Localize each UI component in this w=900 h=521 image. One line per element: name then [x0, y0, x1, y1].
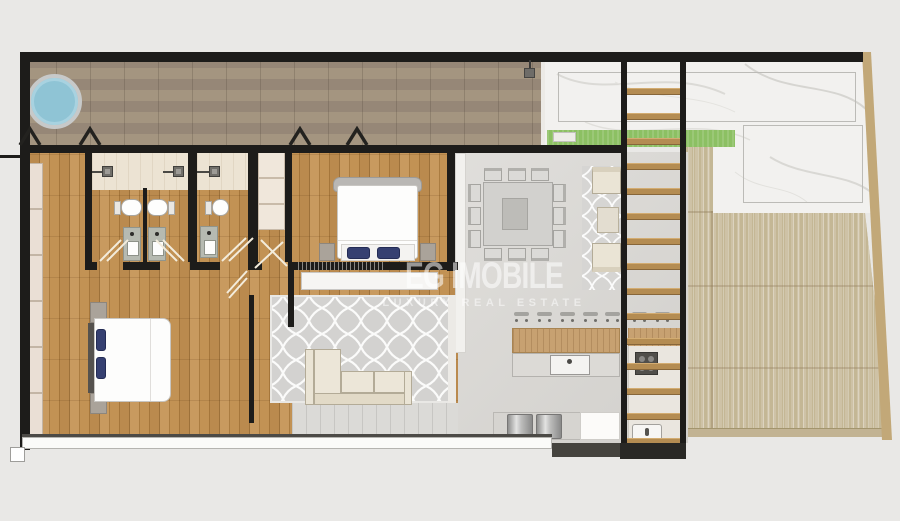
window-band [22, 437, 552, 449]
sofa-armrest [404, 371, 412, 405]
faucet-icon [645, 428, 649, 436]
island-sink [550, 355, 590, 375]
stair-rail [680, 52, 686, 451]
terrace-tile-outline-2 [743, 125, 863, 203]
dining-chair [553, 207, 566, 225]
bar-stool-icon [514, 312, 529, 322]
shower-head-icon [173, 166, 184, 177]
dining-chair [553, 230, 566, 248]
sofa-armrest [305, 349, 314, 405]
dining-chair [508, 248, 526, 261]
dining-chair [531, 168, 549, 181]
stair-tread [627, 338, 680, 345]
dining-chair [531, 248, 549, 261]
tv-console [301, 272, 438, 290]
kitchen-island-bar [512, 328, 620, 353]
bar-stool-icon [583, 312, 598, 322]
toilet [147, 199, 168, 216]
toilet-tank [114, 201, 121, 215]
stair-rail [621, 52, 627, 451]
wall [188, 153, 197, 262]
wall [447, 153, 455, 271]
stair-tread [627, 213, 680, 220]
exterior-wall-top [20, 52, 863, 62]
shower-head-icon [209, 166, 220, 177]
lounge-chair [592, 243, 621, 272]
interior-wall-top [20, 145, 623, 153]
door-marker-icon [16, 126, 44, 146]
stair-tread [627, 388, 680, 395]
dining-chair [468, 184, 481, 202]
patio-strip [292, 403, 458, 436]
door-marker-icon [76, 126, 104, 146]
dining-chair [484, 168, 502, 181]
bed-pillow [96, 357, 106, 379]
wall [85, 262, 97, 270]
toilet-tank [205, 201, 212, 215]
dining-chair [468, 207, 481, 225]
stair-tread [627, 113, 680, 120]
nightstand [319, 243, 335, 261]
wall [248, 153, 258, 262]
stair-tread [627, 413, 680, 420]
sofa-cushion [374, 371, 407, 393]
vanity-sink [148, 227, 166, 261]
wall-cabinet [455, 153, 466, 353]
stair-tread [627, 138, 680, 145]
bed-fold-line [338, 240, 417, 241]
wall [190, 262, 220, 270]
faucet-icon [567, 359, 572, 364]
bed-pillow [347, 247, 370, 259]
dining-chair [468, 230, 481, 248]
vanity-sink [200, 226, 218, 258]
deck-seam [683, 367, 895, 369]
stair-base [620, 443, 686, 459]
dining-chair [508, 168, 526, 181]
planter [553, 132, 576, 142]
side-table [597, 207, 619, 233]
floor-plan: EG IMOBILE LUXURY REAL ESTATE [0, 0, 900, 521]
outdoor-shower-icon [524, 68, 535, 78]
wall-corner-post [10, 447, 25, 462]
toilet [121, 199, 142, 216]
sofa-back [314, 393, 407, 405]
tv-slat-wall [298, 262, 384, 270]
bar-stool-icon [605, 312, 620, 322]
shower-arm [92, 171, 102, 173]
toilet-tank [168, 201, 175, 215]
stair-tread [627, 263, 680, 270]
stair-tread [627, 163, 680, 170]
wall [249, 295, 254, 423]
closet-shelf [258, 204, 285, 230]
sofa-chaise [314, 349, 341, 394]
deck-seam [683, 285, 895, 287]
lounge-chair [592, 167, 621, 194]
kitchen-cabinet [580, 412, 620, 440]
stair-tread [627, 238, 680, 245]
door-marker-icon [343, 126, 371, 146]
wall [285, 153, 292, 262]
shower-arm [197, 171, 209, 173]
door-marker-icon [286, 126, 314, 146]
table-centerpiece [502, 198, 528, 230]
toilet [212, 199, 229, 216]
wall-divider [143, 188, 147, 262]
bar-stool-icon [537, 312, 552, 322]
shower-head-icon [102, 166, 113, 177]
dining-chair [484, 248, 502, 261]
stair-tread [627, 363, 680, 370]
bed-pillow [96, 329, 106, 351]
stair-tread [627, 313, 680, 320]
stair-tread [627, 88, 680, 95]
deck-seam [711, 211, 713, 437]
shower-arm [163, 171, 173, 173]
wall [288, 262, 294, 327]
site-line [0, 155, 20, 158]
stair-base [552, 443, 624, 457]
rug-runner-edge [448, 295, 456, 403]
sofa-cushion [341, 371, 374, 393]
closet-shelf [258, 178, 285, 204]
dining-chair [553, 184, 566, 202]
nightstand [420, 243, 436, 261]
deck-edge-board [685, 428, 890, 437]
wall [123, 262, 160, 270]
terrace-tile-outline-1 [558, 72, 856, 122]
hot-tub [27, 74, 82, 129]
bar-stool-icon [560, 312, 575, 322]
bed-fold-line [150, 319, 151, 401]
stair-tread [627, 188, 680, 195]
stair-tread [627, 288, 680, 295]
vanity-sink [123, 227, 141, 261]
closet-shelf [258, 152, 285, 178]
bed-pillow [377, 247, 400, 259]
wall [85, 153, 92, 262]
exterior-wall-left [20, 52, 30, 450]
wall [248, 262, 262, 270]
